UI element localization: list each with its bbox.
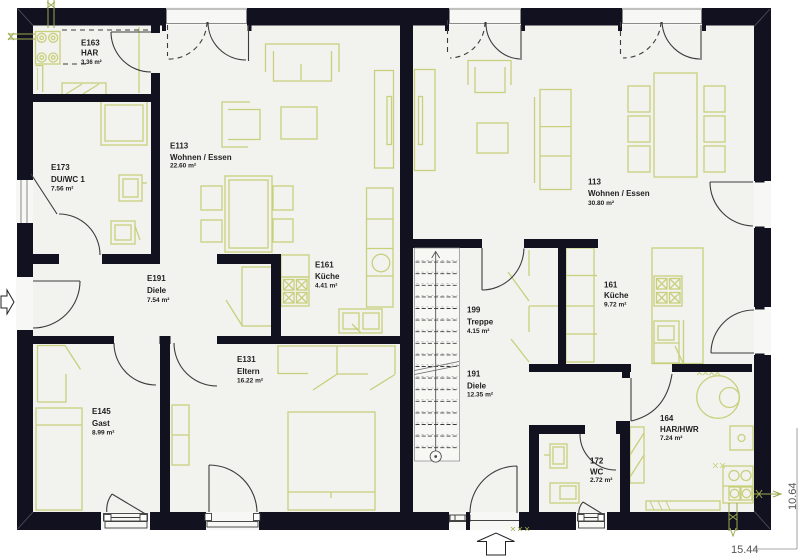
svg-text:HAR/HWR: HAR/HWR [660,425,699,434]
svg-text:Gast: Gast [92,419,110,428]
svg-text:164: 164 [660,414,674,423]
svg-text:Wohnen / Essen: Wohnen / Essen [170,153,232,162]
svg-text:WC: WC [590,468,604,477]
svg-text:Diele: Diele [467,382,487,391]
svg-text:172: 172 [590,457,604,466]
svg-text:4.41 m²: 4.41 m² [315,283,338,290]
svg-text:2.72 m²: 2.72 m² [590,477,613,484]
svg-text:E191: E191 [147,274,166,283]
svg-text:7.24 m²: 7.24 m² [660,435,683,442]
svg-text:30.80 m²: 30.80 m² [588,200,615,207]
svg-text:E173: E173 [51,163,70,172]
svg-text:8.99 m²: 8.99 m² [92,430,115,437]
svg-text:E163: E163 [81,39,100,48]
svg-text:199: 199 [467,306,481,315]
svg-text:4.15 m²: 4.15 m² [467,328,490,335]
svg-text:Küche: Küche [315,272,340,281]
svg-text:22.60 m²: 22.60 m² [170,163,197,170]
svg-text:9.72 m²: 9.72 m² [604,302,627,309]
svg-text:Diele: Diele [147,286,167,295]
svg-text:16.22 m²: 16.22 m² [237,378,264,385]
svg-text:E161: E161 [315,261,334,270]
svg-text:191: 191 [467,370,481,379]
svg-text:7.54 m²: 7.54 m² [147,297,170,304]
svg-text:Wohnen / Essen: Wohnen / Essen [588,189,650,198]
svg-text:113: 113 [588,178,601,187]
svg-text:Eltern: Eltern [237,367,260,376]
svg-text:HAR: HAR [81,49,99,58]
svg-text:3.36 m²: 3.36 m² [81,59,102,66]
svg-text:12.35 m²: 12.35 m² [467,392,494,399]
svg-text:DU/WC 1: DU/WC 1 [51,175,85,184]
svg-text:15.44: 15.44 [731,544,759,556]
svg-text:161: 161 [604,281,618,290]
svg-text:Küche: Küche [604,291,629,300]
svg-text:E113: E113 [170,142,189,151]
svg-text:E131: E131 [237,355,256,364]
svg-text:Treppe: Treppe [467,318,494,327]
svg-text:7.56 m²: 7.56 m² [51,186,74,193]
svg-text:E145: E145 [92,407,111,416]
